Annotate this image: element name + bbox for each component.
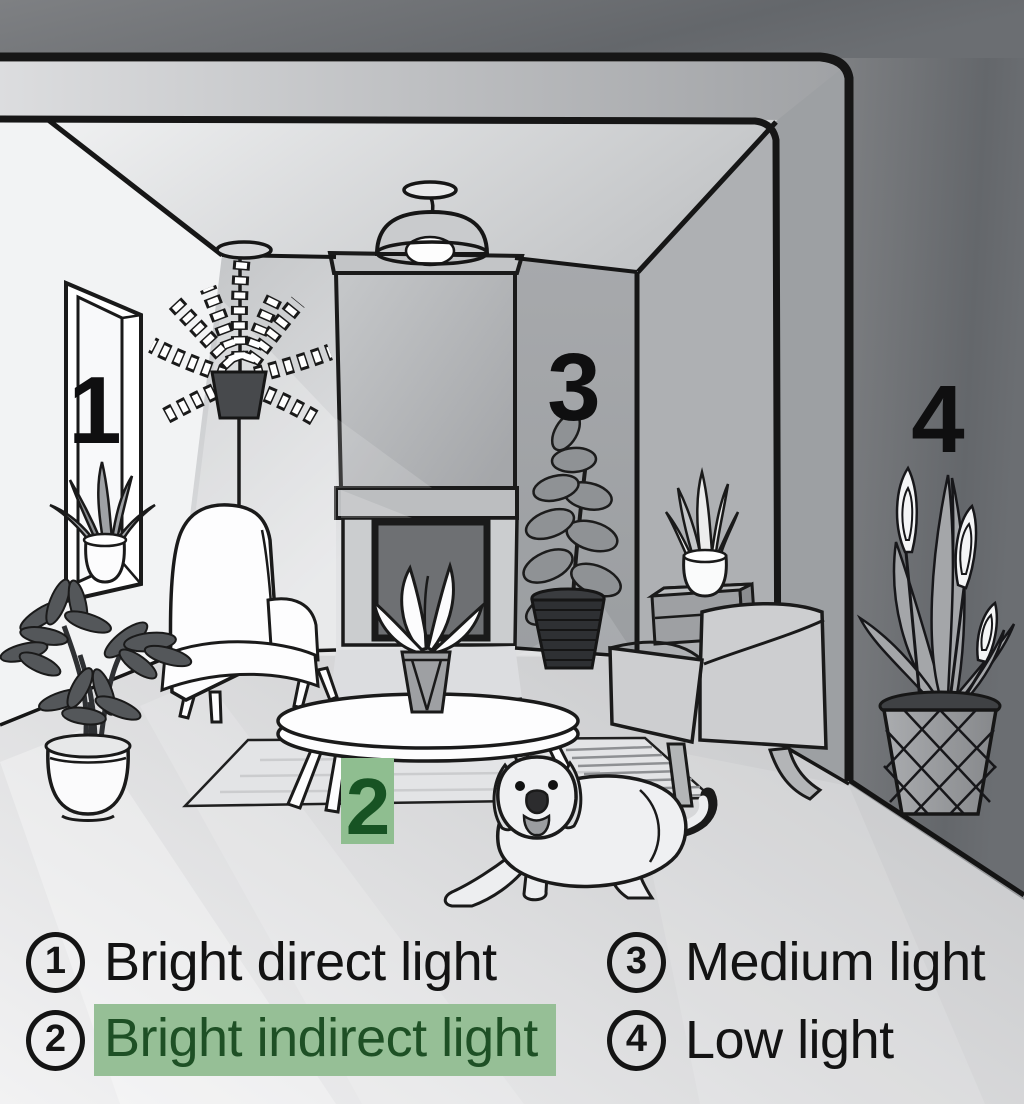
plant-light-infographic: 1 [0, 0, 1024, 1104]
chair-back-panel [700, 604, 826, 748]
dog-nose [526, 791, 547, 814]
fern-pot [212, 372, 266, 418]
label-3: 3 [547, 334, 600, 441]
basket-pot [884, 710, 996, 814]
label-4: 4 [911, 366, 964, 473]
window: 1 [50, 283, 155, 601]
label-2: 2 [346, 762, 391, 851]
living-room-illustration: 1 [0, 0, 1024, 1104]
chair-arm-front [610, 648, 702, 742]
label-1: 1 [68, 357, 121, 464]
soffit [0, 62, 850, 120]
ceiling-mount [217, 242, 271, 258]
badge-2: 2 [341, 758, 394, 851]
